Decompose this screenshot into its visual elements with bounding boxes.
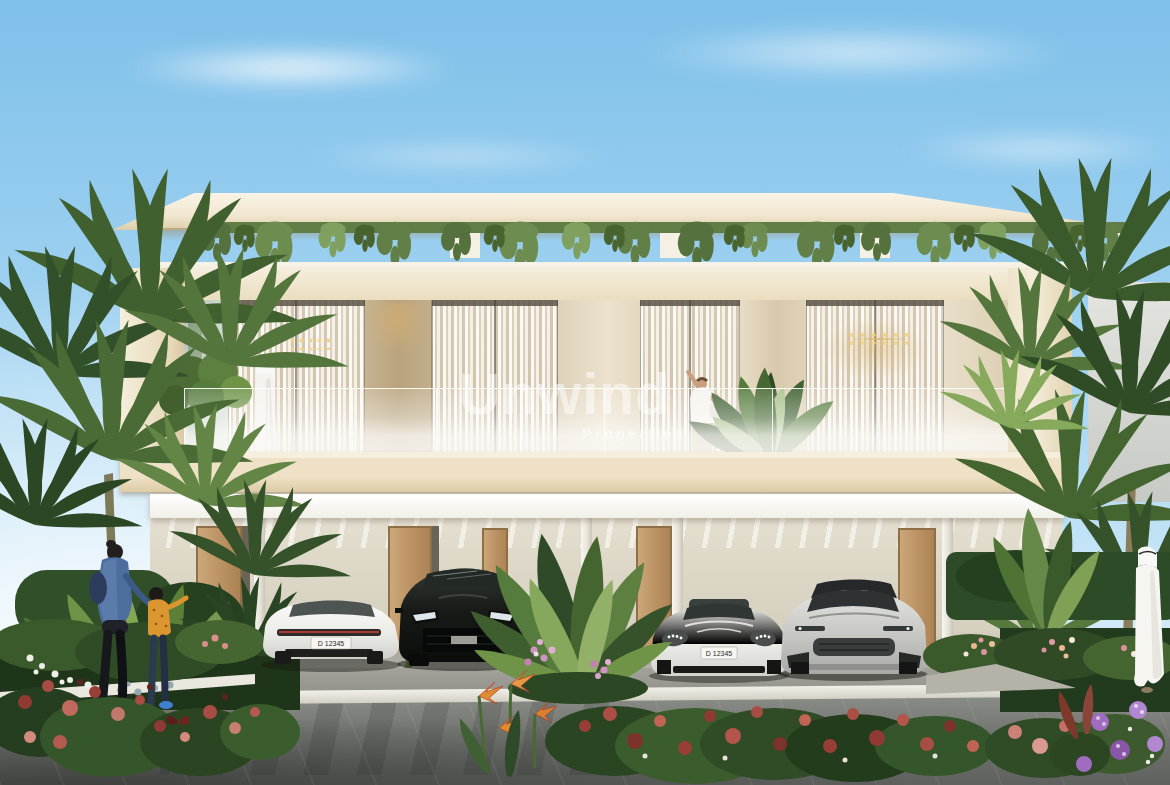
watermark-tagline: Properties — [440, 425, 690, 442]
cloud — [900, 130, 1170, 168]
chandelier-icon — [846, 331, 912, 347]
watermark-brand: Unwind — [440, 366, 690, 423]
rear-license-plate: D 12345 — [311, 637, 351, 649]
wall-lamp-glow — [368, 303, 428, 355]
interior-glow-b2 — [820, 318, 930, 380]
front-license-plate: D 12345 — [701, 647, 737, 659]
license-plate-text: D 12345 — [318, 640, 345, 647]
cloud — [120, 45, 460, 91]
grey-suv-front — [773, 576, 935, 682]
man-in-kandura-garden — [1122, 546, 1170, 704]
foreground-flowers-purple — [1060, 684, 1170, 785]
watermark: Unwind Properties — [440, 366, 690, 442]
villa-exterior-render: Unwind Properties — [0, 0, 1170, 785]
foreground-flowers-center — [415, 686, 1087, 785]
white-sedan-front: D 12345 — [645, 586, 793, 684]
foreground-flowers-left — [0, 642, 300, 785]
license-plate-text: D 12345 — [706, 650, 733, 657]
cloud — [300, 140, 620, 172]
cloud — [640, 25, 1070, 80]
